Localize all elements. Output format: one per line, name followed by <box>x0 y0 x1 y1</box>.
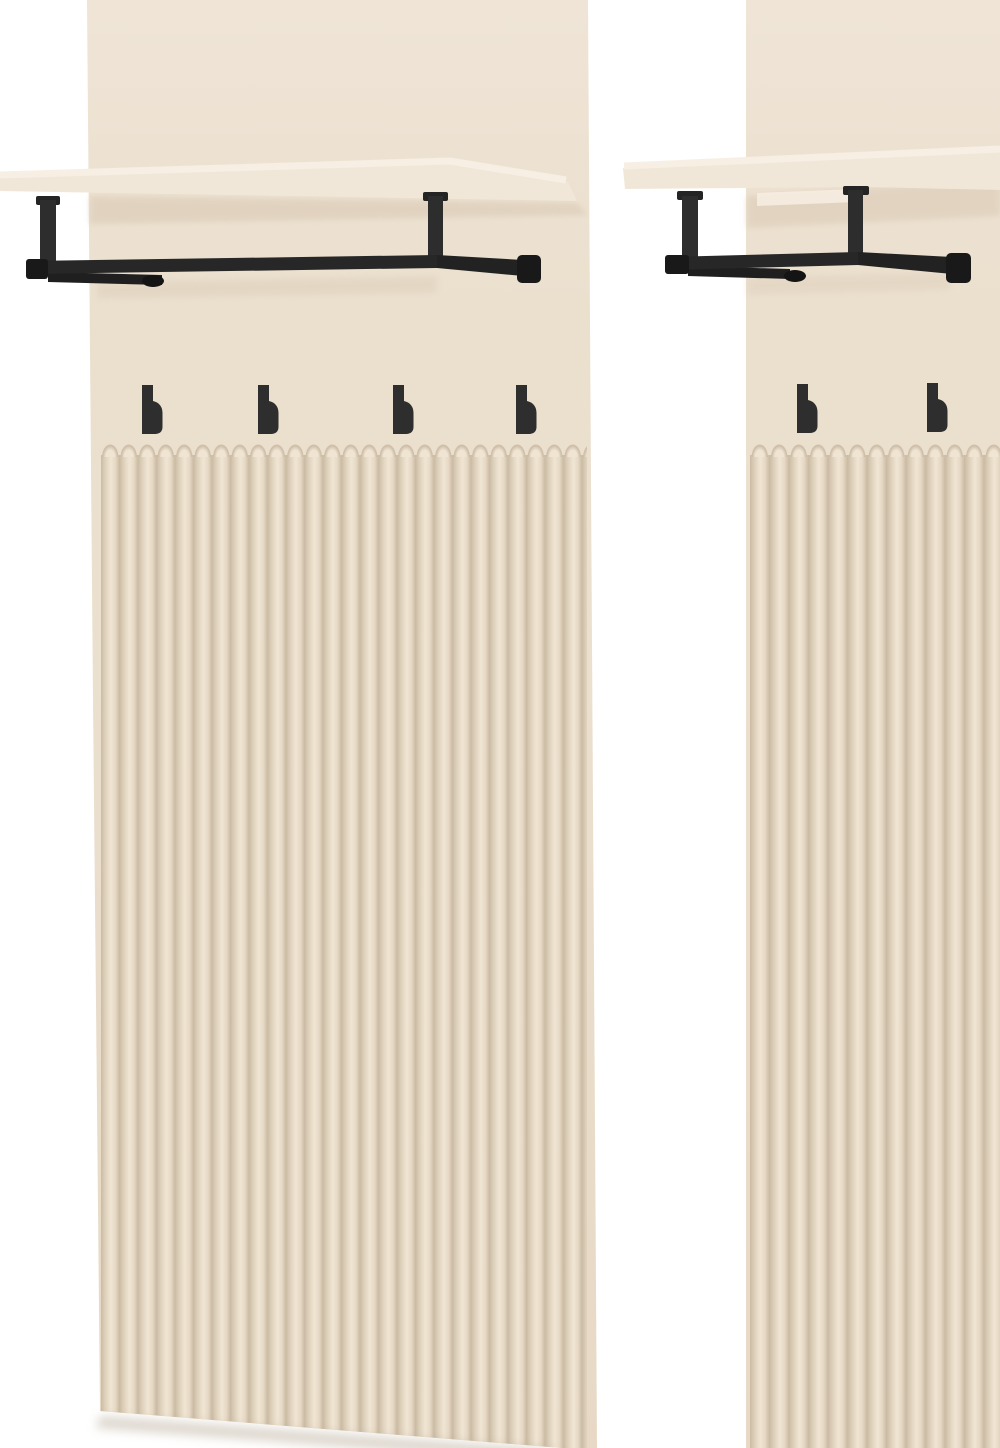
right-rail-post-flange-left <box>677 191 703 200</box>
left-rail-end-cap <box>26 259 48 279</box>
right-rail-end-cap <box>665 255 689 274</box>
product-scene <box>0 0 1000 1448</box>
right-panel-flute-caps <box>750 443 1000 457</box>
left-rail-post-flange-left <box>36 196 60 205</box>
left-panel-flute-caps <box>101 443 587 457</box>
right-rail-post-left <box>682 196 698 260</box>
left-panel-fluting <box>101 455 587 1448</box>
right-panel-fluting <box>750 455 1000 1448</box>
left-wall-panel <box>87 0 597 1448</box>
right-wall-panel <box>746 0 1000 1448</box>
left-rail-post-left <box>40 200 56 264</box>
